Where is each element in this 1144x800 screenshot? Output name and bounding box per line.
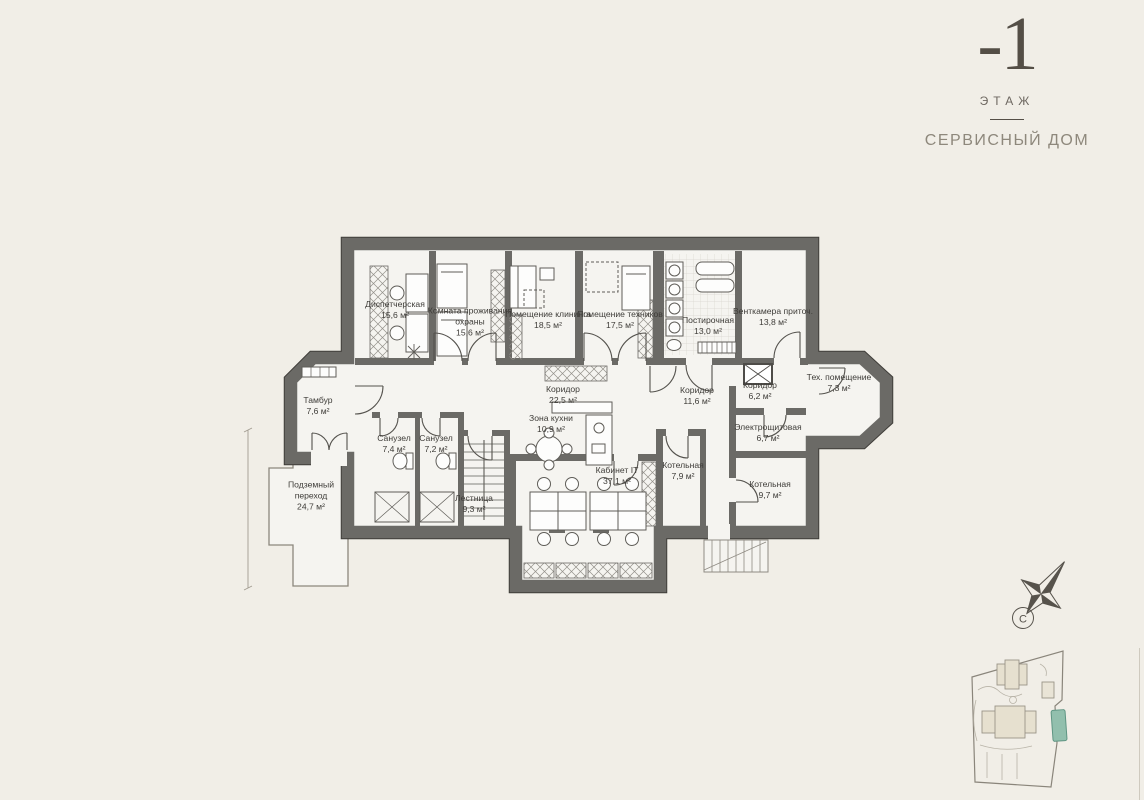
room-label-vent-chamber: Венткамера приточ.13,8 м² xyxy=(728,306,818,328)
room-label-wc-2: Санузел7,2 м² xyxy=(414,433,458,455)
room-label-boiler-2: Котельная9,7 м² xyxy=(742,479,798,501)
room-label-corridor-22: Коридор22,5 м² xyxy=(533,384,593,406)
floor-header: -1 ЭТАЖ СЕРВИСНЫЙ ДОМ xyxy=(922,6,1092,150)
floor-plan-page: С Диспетчерская15, xyxy=(0,0,1144,800)
room-label-underpass: Подземный переход24,7 м² xyxy=(278,480,344,513)
floor-number: -1 xyxy=(922,6,1092,82)
room-label-tech-room: Тех. помещение7,3 м² xyxy=(802,372,876,394)
header-divider xyxy=(990,119,1024,120)
room-label-dispatcher: Диспетчерская15,6 м² xyxy=(353,299,437,321)
room-label-corridor-6: Коридор6,2 м² xyxy=(730,380,790,402)
floor-label: ЭТАЖ xyxy=(922,94,1092,108)
site-map[interactable] xyxy=(972,651,1067,787)
compass-north-label: С xyxy=(1019,614,1027,626)
room-label-corridor-11: Коридор11,6 м² xyxy=(667,385,727,407)
room-label-technicians: Помещение техников17,5 м² xyxy=(573,309,667,331)
room-label-stairs: Лестница9,3 м² xyxy=(446,493,502,515)
exterior-stair xyxy=(704,540,768,572)
room-label-kitchen-zone: Зона кухни10,9 м² xyxy=(519,413,583,435)
room-label-boiler-1: Котельная7,9 м² xyxy=(655,460,711,482)
compass-icon: С xyxy=(1007,548,1083,629)
room-label-it-office: Кабинет IT37,1 м² xyxy=(586,465,648,487)
site-map-highlight-building[interactable] xyxy=(1051,710,1067,742)
building-name: СЕРВИСНЫЙ ДОМ xyxy=(922,132,1092,150)
site-map-buildings xyxy=(982,660,1054,738)
room-label-electrical: Электрощитовая6,7 м² xyxy=(727,422,809,444)
room-label-wc-1: Санузел7,4 м² xyxy=(372,433,416,455)
room-label-tambour: Тамбур7,6 м² xyxy=(288,395,348,417)
